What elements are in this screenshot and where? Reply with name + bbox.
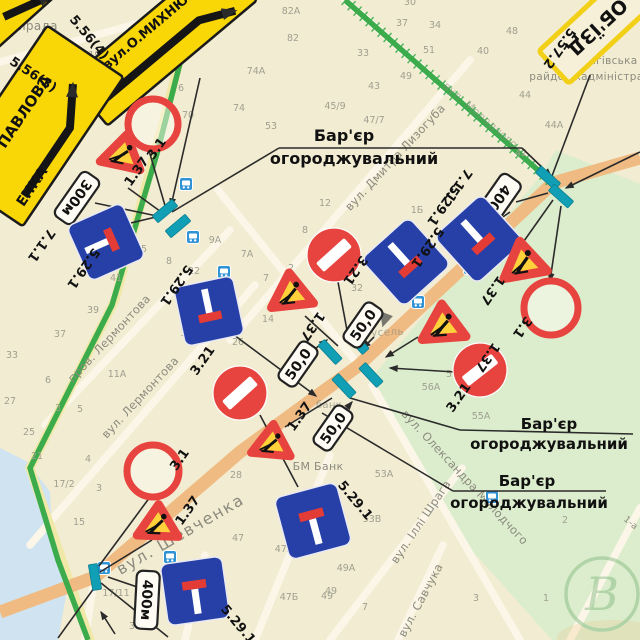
house-number: 11А [108, 369, 127, 380]
house-number: 4 [85, 454, 91, 465]
house-number: 44А [545, 120, 564, 131]
house-number: 44 [519, 90, 531, 101]
street-label: БМ Банк [293, 460, 344, 473]
house-number: 7 [263, 273, 269, 284]
house-number: 6 [178, 83, 184, 94]
sign-dead-end-5-29-1 [160, 556, 230, 626]
house-number: 3 [473, 593, 479, 604]
house-number: 53 [265, 121, 277, 132]
bus-wheel [171, 559, 173, 561]
house-number: 47 [232, 533, 244, 544]
bus-wheel [190, 239, 192, 241]
bus-wheel [419, 304, 421, 306]
bus-glyph [220, 269, 228, 274]
bus-wheel [183, 186, 185, 188]
house-number: 49 [325, 586, 337, 597]
house-number: 49А [337, 563, 356, 574]
house-number: 56А [422, 382, 441, 393]
house-number: 12 [319, 198, 331, 209]
barrier-note-line1: Бар'єр [314, 126, 374, 145]
barrier-note-line1: Бар'єр [521, 415, 578, 433]
house-number: 7А [241, 249, 254, 260]
barrier-note-line2: огороджувальний [450, 494, 608, 512]
house-number: 33 [357, 48, 369, 59]
house-number: 3 [55, 403, 61, 414]
house-number: 17/11 [102, 588, 129, 599]
bus-glyph [166, 554, 174, 559]
bus-stop-icon [180, 178, 193, 191]
barrier-note-line1: Бар'єр [499, 472, 556, 490]
house-number: 47Б [280, 592, 299, 603]
house-number: 40 [477, 46, 489, 57]
house-number: 25 [23, 427, 35, 438]
house-number: 27 [4, 396, 16, 407]
house-number: 1 [543, 593, 549, 604]
house-number: 2 [562, 515, 568, 526]
bus-glyph [182, 181, 190, 186]
watermark-letter: В [584, 567, 619, 621]
bus-wheel [105, 570, 107, 572]
house-number: 45/9 [324, 101, 345, 112]
barrier-note-line2: огороджувальний [270, 149, 438, 168]
house-number: 82 [287, 33, 299, 44]
plate-text: 400м [137, 579, 155, 620]
bus-wheel [415, 304, 417, 306]
house-number: 17/2 [53, 479, 74, 490]
bus-glyph [189, 234, 197, 239]
house-number: 51 [423, 45, 435, 56]
house-number: 14 [262, 314, 274, 325]
house-number: 15 [73, 517, 85, 528]
barrier-note-line2: огороджувальний [470, 435, 628, 453]
house-number: 48 [506, 26, 518, 37]
house-number: 47/7 [363, 115, 384, 126]
bus-stop-icon [164, 551, 177, 564]
house-number: 55А [472, 411, 491, 422]
house-number: 7 [362, 602, 368, 613]
bus-wheel [221, 274, 223, 276]
house-number: 43 [368, 81, 380, 92]
house-number: 5 [77, 404, 83, 415]
bus-wheel [187, 186, 189, 188]
bus-stop-icon [187, 231, 200, 244]
house-number: 74 [233, 103, 245, 114]
house-number: 37 [396, 18, 408, 29]
plate-400м: 400м [134, 570, 160, 629]
house-number: 74А [247, 66, 266, 77]
bus-stop-icon [98, 562, 111, 575]
house-number: 8 [166, 256, 172, 267]
house-number: 53А [375, 469, 394, 480]
house-number: 6 [45, 375, 51, 386]
house-number: 1Б [411, 205, 424, 216]
house-number: 41 [110, 273, 122, 284]
house-number: 9А [209, 235, 222, 246]
street-label: райдержадміністрація [529, 71, 640, 83]
house-number: 28 [230, 470, 242, 481]
bus-glyph [414, 299, 422, 304]
house-number: 39 [87, 305, 99, 316]
sign-no-traffic-3-1 [127, 445, 179, 497]
city-map: райрадавул. Дмитра Лизогубапров. Лермонт… [0, 0, 640, 640]
house-number: 30 [404, 0, 416, 8]
worker-ground [433, 335, 447, 336]
house-number: 37 [54, 329, 66, 340]
house-number: 49 [400, 71, 412, 82]
house-number: 33 [6, 350, 18, 361]
worker-ground [261, 451, 274, 452]
house-number: 3 [96, 483, 102, 494]
bus-wheel [167, 559, 169, 561]
map-canvas: райрадавул. Дмитра Лизогубапров. Лермонт… [0, 0, 640, 640]
house-number: 82А [282, 6, 301, 17]
house-number: 8 [302, 225, 308, 236]
house-number: 34 [429, 20, 441, 31]
house-number: 21 [31, 451, 43, 462]
bus-wheel [194, 239, 196, 241]
house-number: 42 [515, 148, 527, 159]
